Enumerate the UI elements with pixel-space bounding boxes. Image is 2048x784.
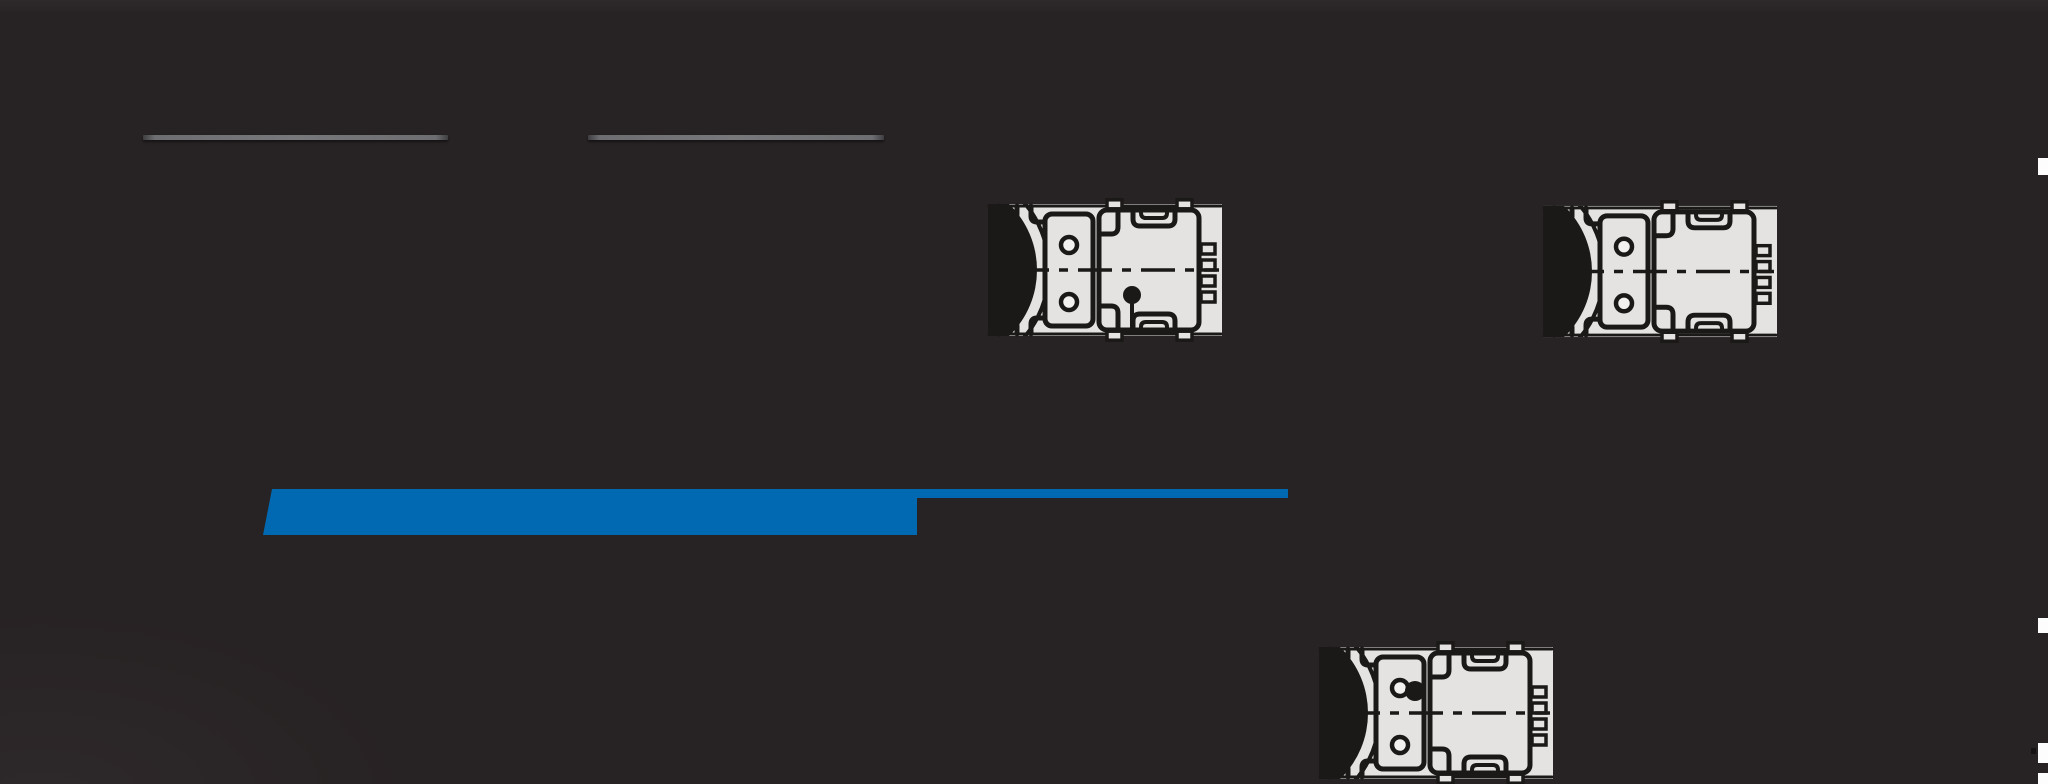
dimmed-catalog-page (0, 0, 2048, 784)
flange-bolt-hole-bottom (1061, 294, 1077, 310)
oil-plug-dot (1123, 286, 1141, 304)
flange-bolt-hole-top (1616, 239, 1632, 255)
top-highlight-band (0, 0, 2048, 14)
progress-track (917, 489, 1288, 498)
flange-bolt-hole-bottom (1616, 295, 1632, 311)
progress-bar (263, 489, 917, 535)
oil-plug-dot (1405, 681, 1425, 701)
page-edge-fragment-3 (2038, 743, 2048, 763)
gearmotor-top-view-2 (1542, 200, 1778, 343)
skeleton-line-2 (588, 135, 884, 140)
gearmotor-top-view-1 (987, 198, 1223, 342)
page-edge-fragment-2 (2038, 618, 2048, 633)
page-edge-fragment-1 (2038, 158, 2048, 175)
flange-bolt-hole-top (1061, 237, 1077, 253)
gearmotor-top-view-3 (1318, 641, 1554, 784)
edge-dark-speck (2031, 748, 2036, 754)
skeleton-line-1 (143, 135, 448, 140)
flange-bolt-hole-bottom (1392, 737, 1408, 753)
page-edge-fragment-4 (2038, 773, 2048, 784)
